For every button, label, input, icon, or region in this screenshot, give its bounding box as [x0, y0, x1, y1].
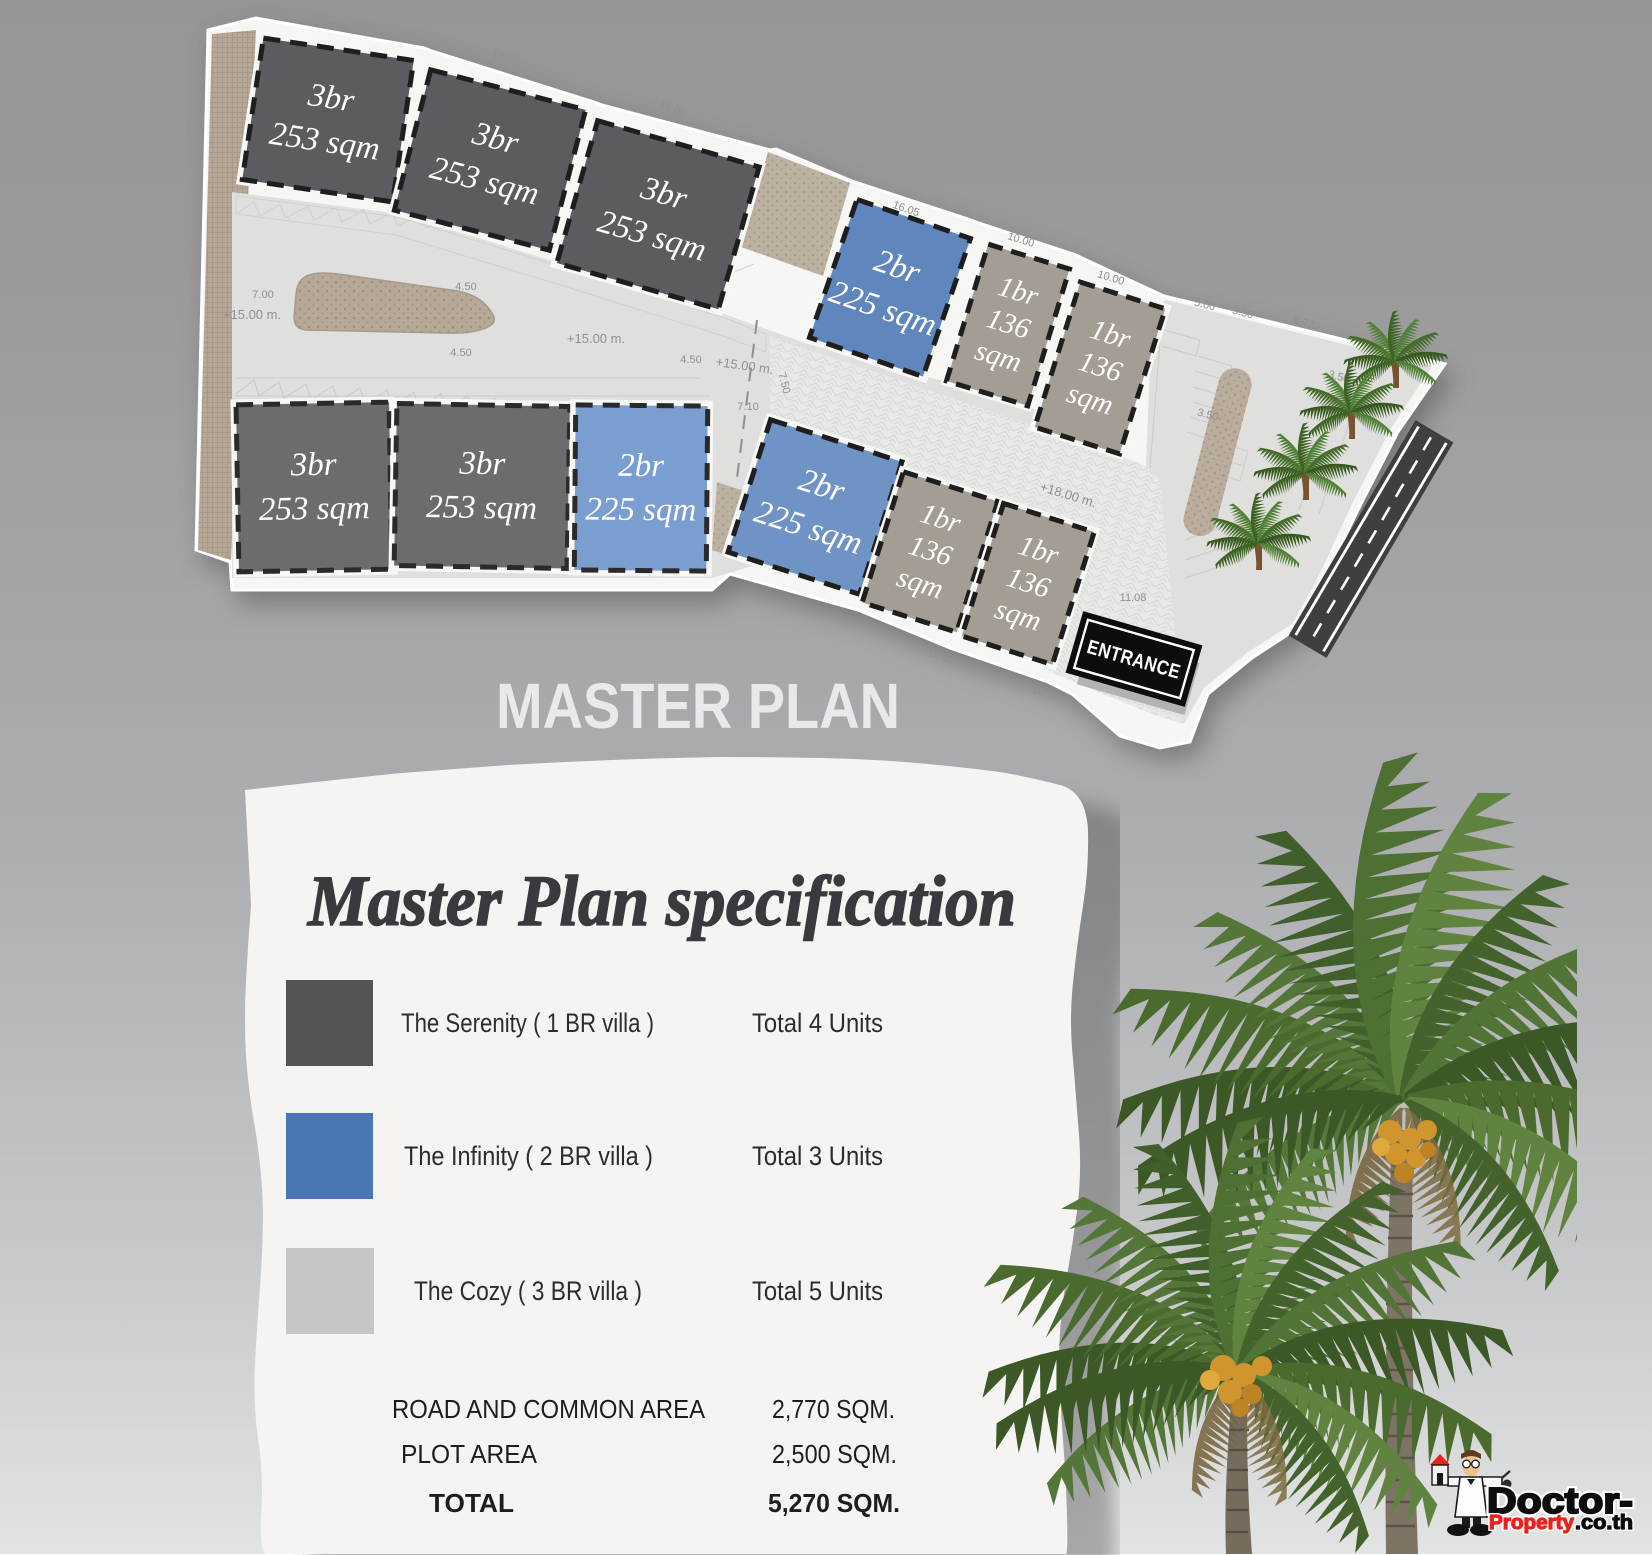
svg-text:3br: 3br: [305, 77, 357, 120]
svg-text:7.00: 7.00: [252, 289, 273, 301]
svg-text:PLOT AREA: PLOT AREA: [401, 1439, 538, 1469]
svg-text:253 sqm: 253 sqm: [426, 489, 538, 527]
svg-text:The Serenity ( 1 BR villa ): The Serenity ( 1 BR villa ): [401, 1008, 654, 1038]
svg-text:4.50: 4.50: [450, 347, 471, 359]
svg-text:2,770 SQM.: 2,770 SQM.: [772, 1394, 895, 1424]
svg-text:TOTAL: TOTAL: [429, 1488, 514, 1518]
svg-text:Total 5 Units: Total 5 Units: [752, 1276, 883, 1306]
svg-text:Master Plan specification: Master Plan specification: [307, 861, 1016, 941]
svg-text:The Cozy ( 3 BR villa ): The Cozy ( 3 BR villa ): [414, 1276, 642, 1306]
svg-text:+15.00 m.: +15.00 m.: [567, 331, 625, 346]
svg-text:3br: 3br: [458, 446, 506, 483]
svg-text:253 sqm: 253 sqm: [259, 490, 371, 528]
svg-text:MASTER PLAN: MASTER PLAN: [496, 670, 900, 742]
svg-text:4.50: 4.50: [680, 354, 701, 366]
svg-text:3br: 3br: [289, 447, 337, 484]
svg-text:2,500 SQM.: 2,500 SQM.: [772, 1439, 897, 1469]
svg-text:7.10: 7.10: [737, 401, 758, 413]
svg-text:Total 4 Units: Total 4 Units: [752, 1008, 883, 1038]
svg-text:The Infinity ( 2 BR villa ): The Infinity ( 2 BR villa ): [404, 1141, 653, 1171]
svg-text:18.00: 18.00: [658, 100, 688, 119]
svg-text:4.50: 4.50: [455, 281, 476, 293]
svg-text:.co.th: .co.th: [1575, 1512, 1633, 1534]
svg-text:18.00: 18.00: [491, 48, 521, 67]
svg-text:5,270 SQM.: 5,270 SQM.: [768, 1488, 900, 1518]
svg-text:Total 3 Units: Total 3 Units: [752, 1141, 883, 1171]
svg-text:ROAD AND COMMON AREA: ROAD AND COMMON AREA: [392, 1394, 706, 1424]
svg-text:2br: 2br: [618, 448, 664, 484]
svg-text:Property: Property: [1489, 1512, 1575, 1534]
svg-text:225 sqm: 225 sqm: [585, 492, 696, 529]
svg-text:+15.00 m.: +15.00 m.: [223, 307, 281, 322]
